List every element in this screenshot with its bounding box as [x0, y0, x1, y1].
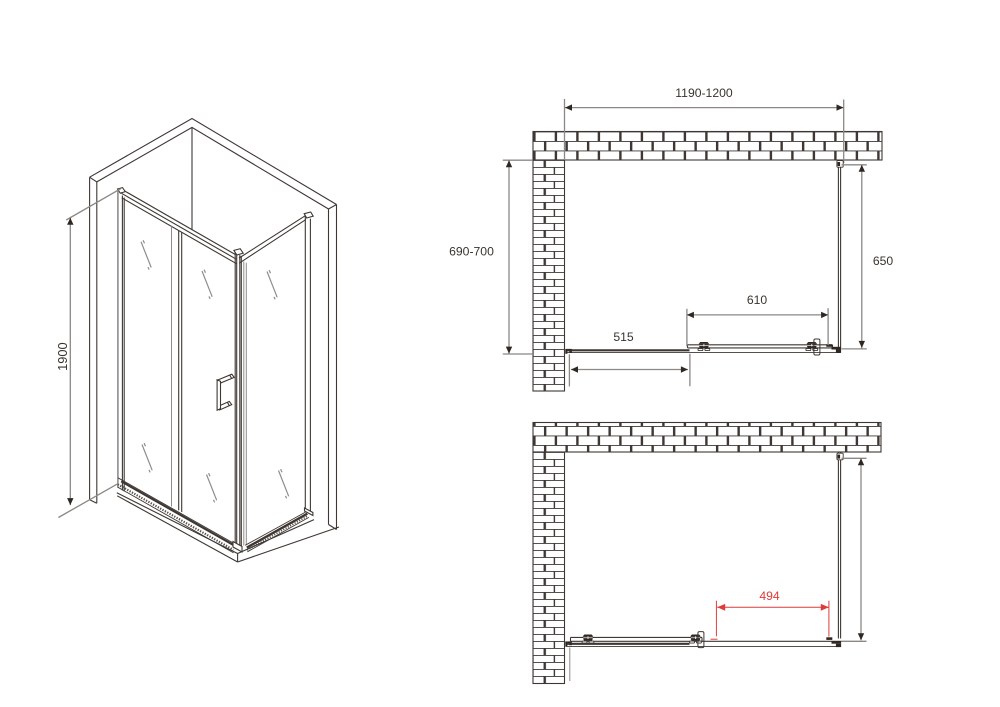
svg-text:1190-1200: 1190-1200	[675, 86, 733, 100]
svg-text:610: 610	[747, 293, 768, 307]
svg-text:1900: 1900	[55, 342, 70, 370]
svg-text:515: 515	[613, 330, 634, 344]
svg-text:494: 494	[759, 589, 780, 603]
svg-text:650: 650	[873, 254, 894, 268]
svg-text:690-700: 690-700	[449, 244, 494, 258]
